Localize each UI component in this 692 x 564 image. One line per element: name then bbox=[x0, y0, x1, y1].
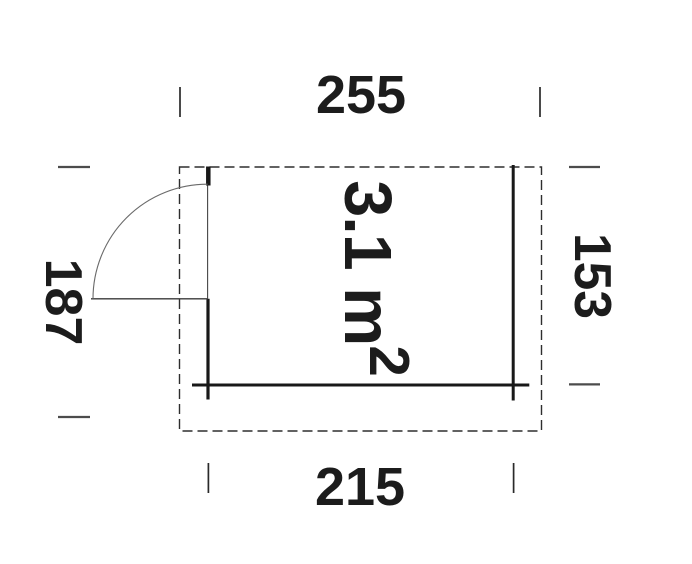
svg-text:255: 255 bbox=[316, 65, 406, 125]
svg-text:3.1 m2: 3.1 m2 bbox=[330, 180, 421, 376]
svg-text:215: 215 bbox=[315, 457, 405, 517]
svg-text:153: 153 bbox=[564, 233, 622, 319]
svg-text:187: 187 bbox=[34, 259, 92, 346]
